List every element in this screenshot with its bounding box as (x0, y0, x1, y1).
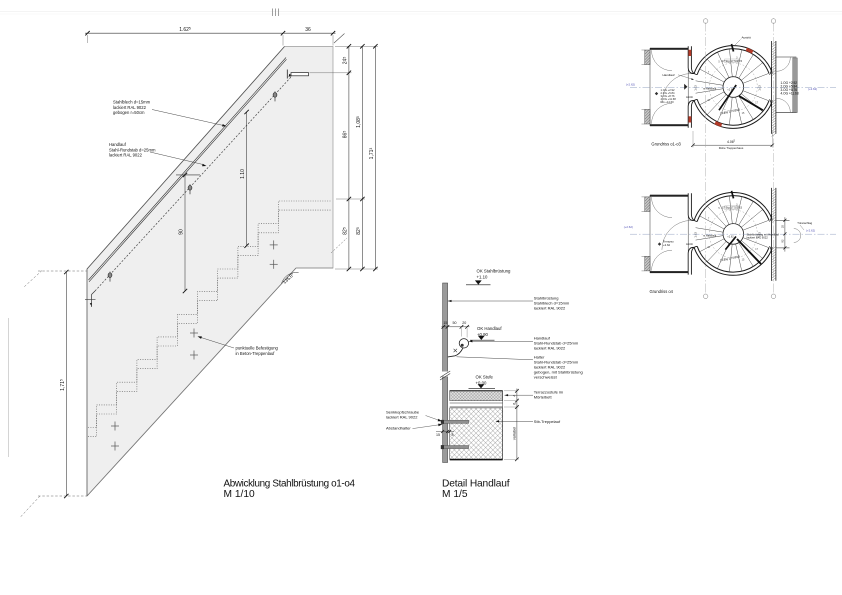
svg-text:Handlauf: Handlauf (663, 73, 675, 77)
svg-text:7: 7 (708, 71, 710, 74)
svg-text:1.63: 1.63 (694, 85, 698, 91)
svg-text:1.625: 1.625 (179, 27, 191, 33)
svg-text:36: 36 (305, 27, 311, 33)
svg-text:825: 825 (342, 227, 348, 235)
svg-text:lackiert RAL 9022: lackiert RAL 9022 (113, 105, 147, 110)
svg-text:Antritt: Antritt (686, 95, 693, 99)
svg-text:92: 92 (781, 239, 785, 242)
svg-text:1.63: 1.63 (758, 85, 762, 91)
svg-text:Abwicklung Stahlbrüstung o1-o4: Abwicklung Stahlbrüstung o1-o4 (224, 479, 356, 490)
svg-text:OK Stufe: OK Stufe (476, 375, 494, 380)
svg-text:4.OG +11.68: 4.OG +11.68 (781, 92, 799, 96)
svg-text:1.63: 1.63 (694, 232, 698, 238)
svg-text:1,085: 1,085 (356, 116, 362, 128)
svg-text:+2.62: +2.62 (663, 243, 671, 247)
svg-text:Antritt: Antritt (686, 242, 693, 246)
svg-text:Stb-Treppelauf: Stb-Treppelauf (534, 419, 561, 424)
svg-text:865: 865 (342, 131, 348, 139)
svg-text:punktuelle Befestigung: punktuelle Befestigung (236, 346, 279, 351)
svg-text:1,715: 1,715 (60, 379, 66, 391)
svg-text:90: 90 (179, 229, 185, 235)
svg-text:Stahlblech d=15mm: Stahlblech d=15mm (113, 100, 151, 105)
svg-text:lackiert RAL 9022: lackiert RAL 9022 (386, 414, 418, 419)
svg-text:15: 15 (742, 259, 745, 262)
svg-text:M 1/10: M 1/10 (224, 489, 255, 500)
svg-text:25: 25 (781, 225, 785, 228)
svg-text:+1.10: +1.10 (477, 275, 488, 280)
svg-text:20: 20 (462, 321, 466, 325)
svg-text:Rohe Treppenhaus: Rohe Treppenhaus (719, 146, 744, 150)
svg-text:Mörtelbett: Mörtelbett (534, 395, 553, 400)
svg-text:8: 8 (452, 433, 454, 437)
svg-text:245: 245 (342, 57, 348, 65)
svg-text:lackiert RAL 9022: lackiert RAL 9022 (747, 236, 769, 240)
svg-text:lackiert RAL 9022: lackiert RAL 9022 (534, 305, 566, 310)
svg-text:11: 11 (707, 246, 710, 249)
svg-text:Handlauf: Handlauf (109, 142, 127, 147)
svg-text:M 1/5: M 1/5 (442, 489, 468, 500)
svg-text:4.065: 4.065 (727, 140, 736, 144)
svg-text:Grundriss o4: Grundriss o4 (650, 289, 674, 294)
svg-text:lackiert RAL 9022: lackiert RAL 9022 (534, 345, 566, 350)
svg-text:+2.62: +2.62 (727, 235, 734, 238)
svg-text:5: 5 (718, 207, 720, 210)
svg-text:gebogen r=50cm: gebogen r=50cm (113, 110, 145, 115)
svg-text:825: 825 (356, 227, 362, 235)
svg-text:50: 50 (453, 321, 457, 325)
svg-text:7: 7 (708, 218, 710, 221)
svg-text:1,713: 1,713 (369, 148, 375, 160)
svg-text:Detail Handlauf: Detail Handlauf (442, 479, 510, 490)
svg-text:15: 15 (436, 433, 440, 437)
svg-text:OK Stahlbrüstung: OK Stahlbrüstung (477, 269, 512, 274)
svg-text:Grundriss o1-o3: Grundriss o1-o3 (651, 141, 681, 146)
svg-text:(+2.62): (+2.62) (624, 225, 633, 229)
svg-text:(+2.62): (+2.62) (806, 228, 815, 232)
svg-text:lackiert RAL 9022: lackiert RAL 9022 (109, 153, 143, 158)
svg-text:15: 15 (742, 112, 745, 115)
svg-text:17: 17 (755, 248, 758, 251)
svg-text:(+2.62): (+2.62) (808, 87, 817, 91)
svg-text:variabel: variabel (512, 427, 516, 440)
svg-text:Abstandhalter: Abstandhalter (386, 426, 411, 431)
svg-text:11: 11 (707, 99, 710, 102)
svg-text:Stahl-Rundstab d=25mm: Stahl-Rundstab d=25mm (109, 147, 156, 152)
svg-text:6: 6 (513, 403, 517, 405)
svg-text:verschweisst: verschweisst (534, 374, 558, 379)
svg-text:Austritt: Austritt (742, 36, 752, 40)
svg-text:OK Handlauf: OK Handlauf (477, 326, 502, 331)
svg-text:+2.62: +2.62 (727, 89, 734, 92)
svg-text:15: 15 (443, 321, 447, 325)
svg-text:17: 17 (755, 101, 758, 104)
svg-text:Türanschlag: Türanschlag (797, 221, 812, 225)
svg-text:5: 5 (718, 60, 720, 63)
svg-text:in Beton-Treppenlauf: in Beton-Treppenlauf (236, 351, 276, 356)
svg-text:DG +14.60: DG +14.60 (661, 100, 675, 104)
svg-text:4: 4 (513, 395, 517, 397)
svg-text:1.10: 1.10 (240, 169, 246, 179)
svg-text:(+2.62): (+2.62) (626, 83, 635, 87)
